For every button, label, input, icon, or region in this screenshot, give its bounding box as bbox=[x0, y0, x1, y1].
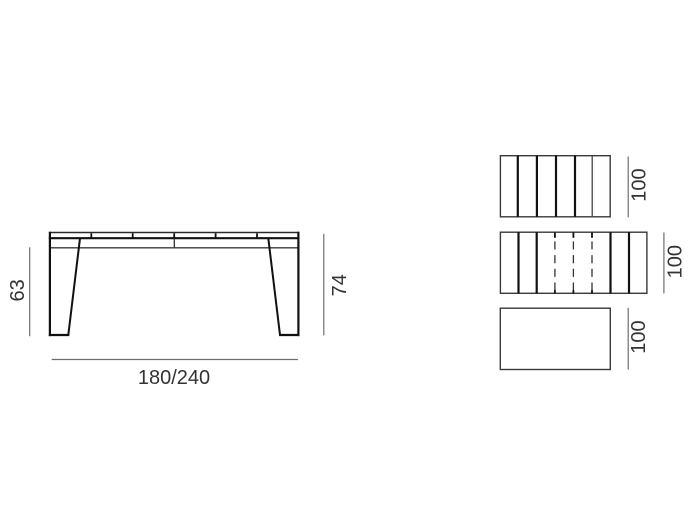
svg-text:100: 100 bbox=[628, 320, 650, 353]
svg-text:100: 100 bbox=[628, 168, 650, 201]
svg-text:63: 63 bbox=[7, 279, 29, 301]
svg-text:100: 100 bbox=[664, 245, 686, 278]
svg-text:180/240: 180/240 bbox=[138, 367, 210, 389]
svg-text:74: 74 bbox=[329, 274, 351, 296]
